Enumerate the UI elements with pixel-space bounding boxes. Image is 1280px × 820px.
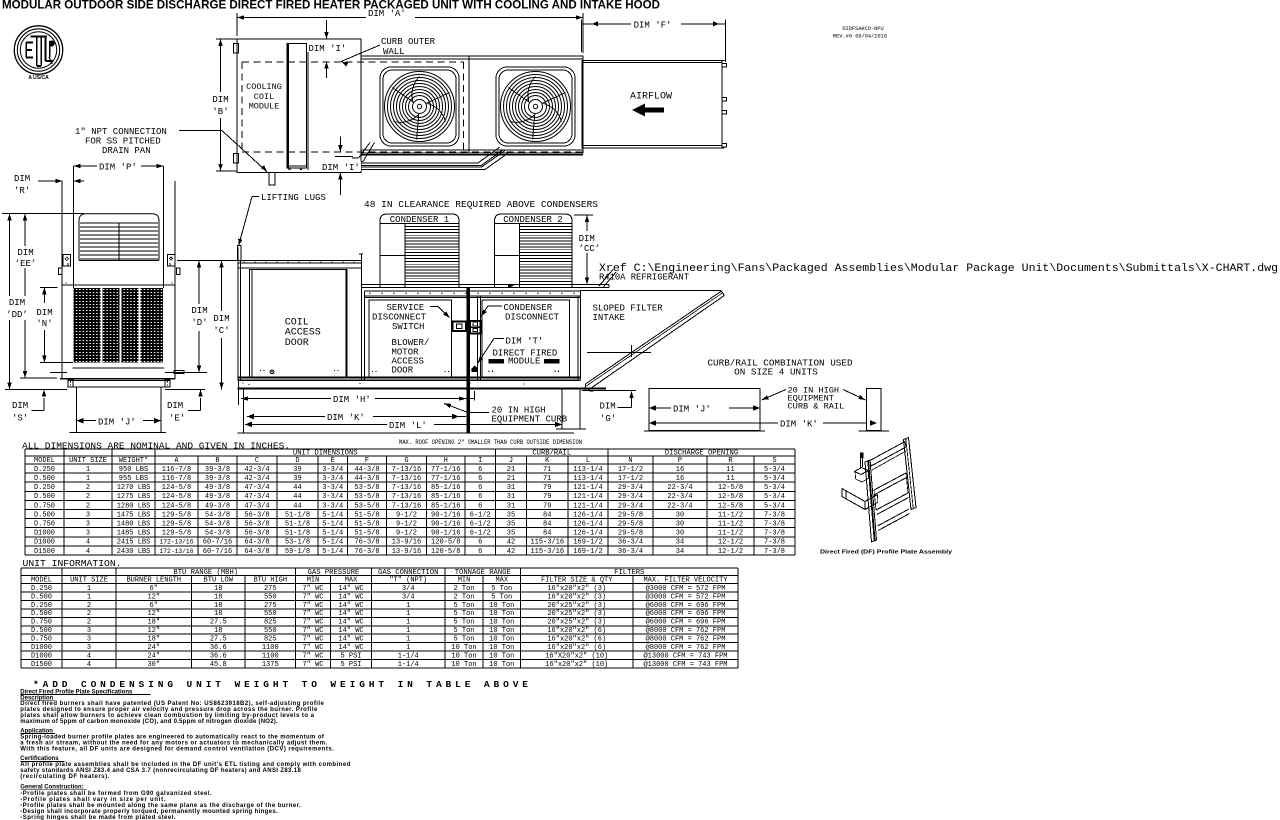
svg-text:45.8: 45.8 <box>210 661 227 669</box>
svg-text:18: 18 <box>214 602 222 610</box>
svg-text:6: 6 <box>478 466 482 474</box>
svg-text:MODEL: MODEL <box>34 457 55 465</box>
svg-text:CONDENSER: CONDENSER <box>504 303 553 313</box>
svg-text:3-3/4: 3-3/4 <box>322 502 343 510</box>
svg-text:31: 31 <box>507 484 515 492</box>
svg-text:29-3/4: 29-3/4 <box>618 484 643 492</box>
svg-text:172-13/16: 172-13/16 <box>159 548 193 555</box>
svg-text:5 Ton: 5 Ton <box>491 585 512 593</box>
svg-text:14" WC: 14" WC <box>338 602 363 610</box>
svg-text:275: 275 <box>264 602 277 610</box>
svg-text:MIN: MIN <box>307 576 320 584</box>
svg-text:126-1/4: 126-1/4 <box>573 511 602 519</box>
svg-text:G: G <box>404 457 408 465</box>
svg-text:825: 825 <box>264 619 277 627</box>
svg-text:27.5: 27.5 <box>210 636 227 644</box>
svg-text:3-3/4: 3-3/4 <box>322 484 343 492</box>
svg-text:29-3/4: 29-3/4 <box>618 493 643 501</box>
svg-text:5 PSI: 5 PSI <box>340 652 361 660</box>
svg-text:51-1/8: 51-1/8 <box>285 511 310 519</box>
svg-text:D.250: D.250 <box>34 466 55 474</box>
svg-text:1" NPT CONNECTION: 1" NPT CONNECTION <box>75 127 167 137</box>
svg-text:42: 42 <box>507 539 515 547</box>
svg-text:DIM 'H': DIM 'H' <box>333 395 371 405</box>
svg-text:16"x20"x2" (6): 16"x20"x2" (6) <box>547 636 606 644</box>
svg-text:R410A REFRIGERANT: R410A REFRIGERANT <box>599 273 689 283</box>
svg-text:S: S <box>772 457 776 465</box>
svg-text:"T" (NPT): "T" (NPT) <box>389 576 427 584</box>
svg-text:D.500: D.500 <box>34 511 55 519</box>
svg-text:22-3/4: 22-3/4 <box>667 493 692 501</box>
svg-text:@8000 CFM = 762 FPM: @8000 CFM = 762 FPM <box>646 627 726 635</box>
svg-text:DIM 'P': DIM 'P' <box>99 163 137 173</box>
svg-text:DIM: DIM <box>600 402 616 412</box>
svg-text:2430 LBS: 2430 LBS <box>117 548 151 556</box>
svg-text:44: 44 <box>293 484 301 492</box>
svg-text:6-1/2: 6-1/2 <box>470 530 491 538</box>
svg-text:39-3/8: 39-3/8 <box>205 466 230 474</box>
svg-text:CURB/RAIL: CURB/RAIL <box>532 450 571 458</box>
svg-text:DIM: DIM <box>167 401 183 411</box>
svg-text:47-3/4: 47-3/4 <box>244 502 269 510</box>
svg-text:17-1/2: 17-1/2 <box>618 466 643 474</box>
svg-text:CONDENSER 2: CONDENSER 2 <box>503 215 562 225</box>
svg-text:D.500: D.500 <box>34 493 55 501</box>
svg-text:7-3/8: 7-3/8 <box>764 539 785 547</box>
svg-text:4: 4 <box>87 661 91 669</box>
svg-text:7" WC: 7" WC <box>302 610 323 618</box>
svg-text:Xref C:\Engineering\Fans\Packa: Xref C:\Engineering\Fans\Packaged Assemb… <box>599 263 1278 275</box>
svg-text:SERVICE: SERVICE <box>387 303 425 313</box>
svg-text:DOOR: DOOR <box>392 366 414 376</box>
svg-text:5-1/4: 5-1/4 <box>322 511 343 519</box>
svg-text:DIM: DIM <box>12 401 28 411</box>
svg-text:16"x20"x2" (3): 16"x20"x2" (3) <box>547 593 606 601</box>
svg-text:7-3/8: 7-3/8 <box>764 511 785 519</box>
svg-text:DIM: DIM <box>191 306 207 316</box>
svg-text:116-7/8: 116-7/8 <box>162 466 191 474</box>
svg-text:35: 35 <box>507 521 515 529</box>
svg-text:MODULE: MODULE <box>249 102 280 112</box>
svg-text:2: 2 <box>86 493 90 501</box>
svg-text:14" WC: 14" WC <box>338 619 363 627</box>
svg-text:COIL: COIL <box>254 92 274 102</box>
svg-text:D.750: D.750 <box>34 521 55 529</box>
svg-text:1-1/4: 1-1/4 <box>398 661 419 669</box>
svg-text:10 Ton: 10 Ton <box>451 652 476 660</box>
svg-text:DISCONNECT: DISCONNECT <box>505 313 560 323</box>
svg-text:60-7/16: 60-7/16 <box>203 548 232 556</box>
svg-text:@8000 CFM = 762 FPM: @8000 CFM = 762 FPM <box>646 644 726 652</box>
svg-text:129-5/8: 129-5/8 <box>162 511 191 519</box>
svg-text:MIN: MIN <box>458 576 471 584</box>
svg-text:47-3/4: 47-3/4 <box>244 484 269 492</box>
svg-text:DIM 'J': DIM 'J' <box>673 405 711 415</box>
svg-text:DIM 'L': DIM 'L' <box>389 421 427 431</box>
svg-text:18": 18" <box>147 636 160 644</box>
svg-text:DIM 'I': DIM 'I' <box>322 163 360 173</box>
svg-text:@13000 CFM = 743 FPM: @13000 CFM = 743 FPM <box>643 661 727 669</box>
svg-text:24": 24" <box>147 644 160 652</box>
svg-text:77-1/16: 77-1/16 <box>431 475 460 483</box>
svg-text:60-7/16: 60-7/16 <box>203 539 232 547</box>
svg-text:12-5/8: 12-5/8 <box>718 502 743 510</box>
svg-text:53-5/8: 53-5/8 <box>354 502 379 510</box>
svg-text:3: 3 <box>86 521 90 529</box>
svg-text:7-13/16: 7-13/16 <box>392 484 421 492</box>
svg-text:1: 1 <box>406 602 410 610</box>
svg-text:42: 42 <box>507 548 515 556</box>
svg-text:10 Ton: 10 Ton <box>489 652 514 660</box>
svg-text:31: 31 <box>507 502 515 510</box>
svg-text:116-7/8: 116-7/8 <box>162 475 191 483</box>
svg-text:49-3/8: 49-3/8 <box>205 493 230 501</box>
svg-text:53-5/8: 53-5/8 <box>354 484 379 492</box>
svg-text:13-9/16: 13-9/16 <box>392 539 421 547</box>
svg-text:5-1/4: 5-1/4 <box>322 530 343 538</box>
svg-text:56-3/8: 56-3/8 <box>244 530 269 538</box>
svg-text:B: B <box>215 457 219 465</box>
svg-text:D1000: D1000 <box>31 644 52 652</box>
svg-text:129-5/8: 129-5/8 <box>162 521 191 529</box>
svg-text:51-5/8: 51-5/8 <box>354 511 379 519</box>
svg-text:54-3/8: 54-3/8 <box>205 521 230 529</box>
svg-text:51-5/8: 51-5/8 <box>354 530 379 538</box>
svg-text:3: 3 <box>86 530 90 538</box>
svg-text:10 Ton: 10 Ton <box>489 602 514 610</box>
svg-text:64-3/8: 64-3/8 <box>244 548 269 556</box>
svg-text:5-1/4: 5-1/4 <box>322 548 343 556</box>
svg-text:DIM: DIM <box>9 298 25 308</box>
svg-text:1: 1 <box>406 636 410 644</box>
svg-text:11: 11 <box>726 466 734 474</box>
svg-text:10 Ton: 10 Ton <box>451 661 476 669</box>
svg-text:1100: 1100 <box>262 644 279 652</box>
svg-text:F: F <box>365 457 369 465</box>
svg-text:DIM: DIM <box>14 174 30 184</box>
svg-text:CURB OUTER: CURB OUTER <box>381 37 436 47</box>
svg-text:85-1/16: 85-1/16 <box>431 484 460 492</box>
svg-text:UNIT DIMENSIONS: UNIT DIMENSIONS <box>293 450 358 458</box>
svg-text:D.750: D.750 <box>31 636 52 644</box>
svg-text:124-5/8: 124-5/8 <box>162 493 191 501</box>
svg-text:71: 71 <box>543 475 551 483</box>
svg-text:48 IN CLEARANCE REQUIRED ABOVE: 48 IN CLEARANCE REQUIRED ABOVE CONDENSER… <box>364 199 598 210</box>
svg-text:18: 18 <box>214 593 222 601</box>
svg-text:’CC’: ’CC’ <box>579 244 601 254</box>
svg-text:51-5/8: 51-5/8 <box>354 521 379 529</box>
svg-text:1375: 1375 <box>262 661 279 669</box>
svg-text:21: 21 <box>507 475 515 483</box>
svg-text:35: 35 <box>507 530 515 538</box>
svg-text:121-1/4: 121-1/4 <box>573 502 602 510</box>
svg-text:16"x20"x2" (10): 16"x20"x2" (10) <box>545 661 608 669</box>
svg-text:DRAIN PAN: DRAIN PAN <box>102 146 151 156</box>
svg-text:54-3/8: 54-3/8 <box>205 511 230 519</box>
svg-text:A US/CA: A US/CA <box>28 75 49 81</box>
svg-text:E: E <box>331 457 335 465</box>
svg-text:126-1/4: 126-1/4 <box>573 521 602 529</box>
svg-text:2: 2 <box>86 502 90 510</box>
svg-text:1275 LBS: 1275 LBS <box>117 493 151 501</box>
svg-text:79: 79 <box>543 493 551 501</box>
svg-text:3/4: 3/4 <box>402 593 415 601</box>
svg-text:120-5/8: 120-5/8 <box>431 539 460 547</box>
svg-text:120-5/8: 120-5/8 <box>431 548 460 556</box>
svg-text:11: 11 <box>726 475 734 483</box>
svg-text:47-3/4: 47-3/4 <box>244 493 269 501</box>
svg-text:1270 LBS: 1270 LBS <box>117 484 151 492</box>
svg-text:30: 30 <box>676 530 684 538</box>
svg-text:D.250: D.250 <box>31 585 52 593</box>
svg-text:MAX. FILTER VELOCITY: MAX. FILTER VELOCITY <box>643 576 728 584</box>
svg-text:90-1/16: 90-1/16 <box>431 511 460 519</box>
svg-text:16"x20"x2" (6): 16"x20"x2" (6) <box>547 627 606 635</box>
svg-text:2: 2 <box>87 610 91 618</box>
svg-text:20"x25"x2" (3): 20"x25"x2" (3) <box>547 610 606 618</box>
svg-text:29-5/8: 29-5/8 <box>618 511 643 519</box>
svg-text:9-1/2: 9-1/2 <box>396 530 417 538</box>
svg-text:12": 12" <box>147 610 160 618</box>
svg-text:1: 1 <box>86 466 90 474</box>
svg-text:DIM 'A': DIM 'A' <box>368 9 406 19</box>
svg-text:N: N <box>628 457 632 465</box>
svg-text:16"X20"x2" (10): 16"X20"x2" (10) <box>545 652 608 660</box>
svg-text:124-5/8: 124-5/8 <box>162 484 191 492</box>
svg-text:ALL DIMENSIONS ARE NOMINAL AND: ALL DIMENSIONS ARE NOMINAL AND GIVEN IN … <box>22 440 290 451</box>
svg-text:'C': 'C' <box>213 326 229 336</box>
svg-text:16"x20"x2" (6): 16"x20"x2" (6) <box>547 644 606 652</box>
svg-text:EQUIPMENT CURB: EQUIPMENT CURB <box>492 415 568 425</box>
svg-text:12-5/8: 12-5/8 <box>718 484 743 492</box>
svg-text:6: 6 <box>478 548 482 556</box>
svg-text:DOOR: DOOR <box>285 338 309 349</box>
svg-text:12-1/2: 12-1/2 <box>718 548 743 556</box>
svg-text:CURB & RAIL: CURB & RAIL <box>788 401 845 411</box>
svg-text:DIDFSAHCO-NPU: DIDFSAHCO-NPU <box>842 26 883 32</box>
svg-text:@3000 CFM = 572 FPM: @3000 CFM = 572 FPM <box>646 585 726 593</box>
svg-text:550: 550 <box>264 593 277 601</box>
svg-text:39: 39 <box>293 475 301 483</box>
svg-text:20"x25"x2" (3): 20"x25"x2" (3) <box>547 619 606 627</box>
svg-text:1485 LBS: 1485 LBS <box>117 530 151 538</box>
svg-text:’DD’: ’DD’ <box>6 310 28 320</box>
svg-text:@3000 CFM = 572 FPM: @3000 CFM = 572 FPM <box>646 593 726 601</box>
svg-text:4: 4 <box>87 652 91 660</box>
svg-text:DIM 'K': DIM 'K' <box>327 413 365 423</box>
svg-text:11-1/2: 11-1/2 <box>718 530 743 538</box>
svg-text:D1000: D1000 <box>34 539 55 547</box>
svg-text:36-3/4: 36-3/4 <box>618 548 643 556</box>
svg-text:DISCHARGE OPENING: DISCHARGE OPENING <box>665 450 738 458</box>
svg-text:24": 24" <box>147 652 160 660</box>
svg-text:10 Ton: 10 Ton <box>489 610 514 618</box>
svg-text:51-1/8: 51-1/8 <box>285 530 310 538</box>
svg-text:ON SIZE 4 UNITS: ON SIZE 4 UNITS <box>734 366 818 377</box>
svg-text:DIM 'K': DIM 'K' <box>780 420 818 430</box>
svg-text:FILTERS: FILTERS <box>614 569 644 577</box>
svg-text:DIM: DIM <box>579 234 595 244</box>
svg-text:D1000: D1000 <box>34 530 55 538</box>
svg-text:(recirculating DF heaters).: (recirculating DF heaters). <box>20 774 109 780</box>
svg-text:39-3/8: 39-3/8 <box>205 475 230 483</box>
svg-text:5 Ton: 5 Ton <box>453 636 474 644</box>
svg-text:SLOPED FILTER: SLOPED FILTER <box>593 304 664 314</box>
svg-text:79: 79 <box>543 502 551 510</box>
svg-text:36.6: 36.6 <box>210 644 227 652</box>
svg-text:@6000 CFM = 696 FPM: @6000 CFM = 696 FPM <box>646 610 726 618</box>
svg-text:5-3/4: 5-3/4 <box>764 502 785 510</box>
svg-text:1280 LBS: 1280 LBS <box>117 502 151 510</box>
svg-text:84: 84 <box>543 530 551 538</box>
svg-text:18: 18 <box>214 610 222 618</box>
svg-text:L: L <box>586 457 590 465</box>
svg-text:WALL: WALL <box>383 47 405 57</box>
svg-text:BTU LOW: BTU LOW <box>204 576 234 584</box>
svg-text:42-3/4: 42-3/4 <box>244 475 269 483</box>
svg-text:MAX: MAX <box>495 576 508 584</box>
svg-text:825: 825 <box>264 636 277 644</box>
svg-text:121-1/4: 121-1/4 <box>573 484 602 492</box>
svg-text:2: 2 <box>87 602 91 610</box>
svg-text:29-3/4: 29-3/4 <box>618 502 643 510</box>
svg-text:5 Ton: 5 Ton <box>453 627 474 635</box>
svg-text:51-1/8: 51-1/8 <box>285 521 310 529</box>
svg-text:maximum of 5ppm of carbon mono: maximum of 5ppm of carbon monoxide (CO),… <box>20 719 278 725</box>
svg-text:INTAKE: INTAKE <box>593 313 625 323</box>
svg-text:BLOWER/: BLOWER/ <box>392 338 430 348</box>
svg-text:FOR SS PITCHED: FOR SS PITCHED <box>85 137 161 147</box>
svg-text:35: 35 <box>507 511 515 519</box>
svg-text:P: P <box>678 457 682 465</box>
svg-text:D.750: D.750 <box>31 619 52 627</box>
svg-text:84: 84 <box>543 511 551 519</box>
svg-text:With this feature, all DF unit: With this feature, all DF units are desi… <box>20 747 334 753</box>
svg-text:18: 18 <box>214 585 222 593</box>
svg-text:LIFTING LUGS: LIFTING LUGS <box>261 193 326 203</box>
svg-text:10 Ton: 10 Ton <box>489 636 514 644</box>
svg-text:550: 550 <box>264 627 277 635</box>
svg-text:7" WC: 7" WC <box>302 636 323 644</box>
svg-text:124-5/8: 124-5/8 <box>162 502 191 510</box>
svg-text:12": 12" <box>147 593 160 601</box>
svg-text:'E': 'E' <box>169 414 185 424</box>
svg-text:16: 16 <box>676 466 684 474</box>
svg-text:950 LBS: 950 LBS <box>119 466 148 474</box>
svg-text:79: 79 <box>543 484 551 492</box>
svg-text:7" WC: 7" WC <box>302 661 323 669</box>
svg-text:'G': 'G' <box>600 414 616 424</box>
svg-text:3-3/4: 3-3/4 <box>322 475 343 483</box>
svg-text:7-13/16: 7-13/16 <box>392 475 421 483</box>
svg-text:11-1/2: 11-1/2 <box>718 521 743 529</box>
svg-text:6-1/2: 6-1/2 <box>470 521 491 529</box>
svg-text:7-3/8: 7-3/8 <box>764 530 785 538</box>
svg-text:6": 6" <box>150 585 158 593</box>
svg-text:Direct Fired (DF) Profile Plat: Direct Fired (DF) Profile Plate Assembly <box>820 550 953 556</box>
svg-text:D.250: D.250 <box>34 484 55 492</box>
svg-text:@13000 CFM = 743 FPM: @13000 CFM = 743 FPM <box>643 652 727 660</box>
svg-text:D.500: D.500 <box>31 627 52 635</box>
svg-text:31: 31 <box>507 493 515 501</box>
svg-text:7-13/16: 7-13/16 <box>392 466 421 474</box>
svg-text:4: 4 <box>86 548 90 556</box>
svg-text:2: 2 <box>86 484 90 492</box>
svg-text:AIRFLOW: AIRFLOW <box>630 92 672 103</box>
svg-text:@6000 CFM = 696 FPM: @6000 CFM = 696 FPM <box>646 619 726 627</box>
svg-text:90-1/16: 90-1/16 <box>431 521 460 529</box>
svg-text:10 Ton: 10 Ton <box>489 619 514 627</box>
svg-text:10 Ton: 10 Ton <box>489 627 514 635</box>
svg-text:DIM 'I': DIM 'I' <box>309 44 347 54</box>
svg-text:16: 16 <box>676 475 684 483</box>
svg-text:1: 1 <box>406 619 410 627</box>
svg-text:49-3/8: 49-3/8 <box>205 484 230 492</box>
svg-text:36.6: 36.6 <box>210 652 227 660</box>
svg-text:115-3/16: 115-3/16 <box>530 539 564 547</box>
svg-text:21: 21 <box>507 466 515 474</box>
svg-text:53-5/8: 53-5/8 <box>354 493 379 501</box>
svg-text:6: 6 <box>478 493 482 501</box>
svg-text:1: 1 <box>87 593 91 601</box>
svg-text:UNIT SIZE: UNIT SIZE <box>69 457 107 465</box>
svg-text:169-1/2: 169-1/2 <box>573 548 602 556</box>
svg-text:7-3/8: 7-3/8 <box>764 548 785 556</box>
svg-text:MAX: MAX <box>345 576 358 584</box>
svg-text:76-3/8: 76-3/8 <box>354 539 379 547</box>
svg-text:14" WC: 14" WC <box>338 636 363 644</box>
svg-text:5 Ton: 5 Ton <box>453 610 474 618</box>
svg-text:39: 39 <box>293 466 301 474</box>
svg-text:49-3/8: 49-3/8 <box>205 502 230 510</box>
svg-text:UNIT SIZE: UNIT SIZE <box>70 576 108 584</box>
svg-text:44-3/8: 44-3/8 <box>354 475 379 483</box>
svg-text:30: 30 <box>676 521 684 529</box>
svg-text:C: C <box>255 457 259 465</box>
svg-text:5-1/4: 5-1/4 <box>322 539 343 547</box>
svg-text:1: 1 <box>86 475 90 483</box>
svg-text:1: 1 <box>406 610 410 618</box>
svg-text:6: 6 <box>478 502 482 510</box>
svg-text:6": 6" <box>150 602 158 610</box>
svg-text:36-3/4: 36-3/4 <box>618 539 643 547</box>
svg-text:-Spring hinges shall be made f: -Spring hinges shall be made from plated… <box>20 815 175 820</box>
svg-text:MAX. ROOF OPENING 2" SMALLER T: MAX. ROOF OPENING 2" SMALLER THAN CURB O… <box>399 439 582 446</box>
svg-text:REV.#0 09/04/2018: REV.#0 09/04/2018 <box>833 34 887 40</box>
svg-text:D.250: D.250 <box>31 602 52 610</box>
svg-text:DIM 'F': DIM 'F' <box>634 21 672 31</box>
svg-text:2: 2 <box>87 619 91 627</box>
svg-text:44: 44 <box>293 502 301 510</box>
svg-text:BURNER LENGTH: BURNER LENGTH <box>126 576 181 584</box>
svg-text:3/4: 3/4 <box>402 585 415 593</box>
svg-text:126-1/4: 126-1/4 <box>573 530 602 538</box>
svg-text:1-1/4: 1-1/4 <box>398 652 419 660</box>
svg-text:5-1/4: 5-1/4 <box>322 521 343 529</box>
svg-text:9-1/2: 9-1/2 <box>396 511 417 519</box>
svg-text:64-3/8: 64-3/8 <box>244 539 269 547</box>
svg-text:17-1/2: 17-1/2 <box>618 475 643 483</box>
svg-text:85-1/16: 85-1/16 <box>431 493 460 501</box>
svg-text:6-1/2: 6-1/2 <box>470 511 491 519</box>
svg-text:7" WC: 7" WC <box>302 593 323 601</box>
svg-text:MODULE: MODULE <box>508 357 540 367</box>
svg-text:5 Ton: 5 Ton <box>453 619 474 627</box>
svg-text:7" WC: 7" WC <box>302 585 323 593</box>
svg-text:10 Ton: 10 Ton <box>489 644 514 652</box>
svg-text:550: 550 <box>264 610 277 618</box>
svg-text:7-3/8: 7-3/8 <box>764 521 785 529</box>
